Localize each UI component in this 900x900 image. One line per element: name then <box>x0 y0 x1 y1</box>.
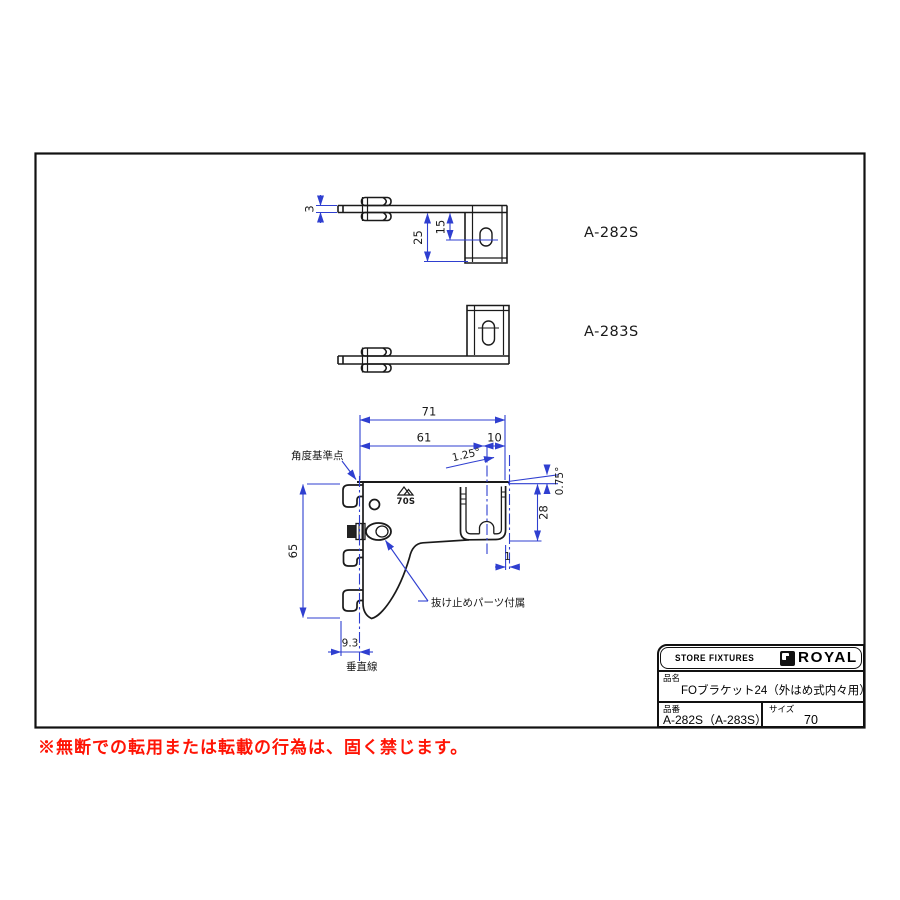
dim-thickness: 3 <box>303 205 317 212</box>
dim-tip-gap: 1 <box>504 551 511 563</box>
label-a283s: A-283S <box>584 324 639 340</box>
product-name-row: 品名 FOブラケット24（外はめ式内々用） <box>659 670 863 701</box>
cad-linework: 3 25 15 A-282S A-283S <box>0 0 900 900</box>
dim-back-height: 65 <box>286 544 300 559</box>
stamp-70s: 70S <box>397 497 416 507</box>
label-a282s: A-282S <box>584 225 639 241</box>
royal-logo-icon <box>780 651 795 666</box>
size-cell: サイズ 70 <box>763 703 863 728</box>
dim-total-width: 71 <box>422 405 437 419</box>
dim-channel-height: 28 <box>537 505 551 520</box>
title-block-header: STORE FIXTURES ROYAL <box>660 647 862 669</box>
label-angle-reference: 角度基準点 <box>291 449 344 462</box>
drawing-sheet: 3 25 15 A-282S A-283S <box>0 0 900 900</box>
a282s-part-outline <box>338 197 507 263</box>
dim-slot-offset: 15 <box>434 220 448 235</box>
dim-hook-depth: 9.3 <box>342 638 359 650</box>
size-value: 70 <box>769 714 863 726</box>
dim-back: 61 <box>417 431 432 445</box>
dim-depth-total: 25 <box>411 230 425 245</box>
dim-top-angle: 0.75° <box>554 467 566 496</box>
product-name-value: FOブラケット24（外はめ式内々用） <box>663 683 859 700</box>
code-size-row: 品番 A-282S（A-283S） サイズ 70 <box>659 701 863 728</box>
title-block: STORE FIXTURES ROYAL 品名 FOブラケット24（外はめ式内々… <box>657 644 865 728</box>
product-name-label: 品名 <box>663 673 859 683</box>
a283s-part-outline <box>338 306 509 373</box>
product-code-cell: 品番 A-282S（A-283S） <box>659 703 763 728</box>
dim-tip: 10 <box>487 431 502 445</box>
royal-logo-text: ROYAL <box>798 650 858 666</box>
royal-brand: ROYAL <box>780 650 855 666</box>
copyright-warning: ※無断での転用または転載の行為は、固く禁じます。 <box>38 733 468 758</box>
store-fixtures-text: STORE FIXTURES <box>675 653 754 663</box>
label-vertical-line: 垂直線 <box>346 660 378 673</box>
label-retainer-note: 抜け止めパーツ付属 <box>431 596 525 609</box>
product-code-value: A-282S（A-283S） <box>663 714 761 727</box>
